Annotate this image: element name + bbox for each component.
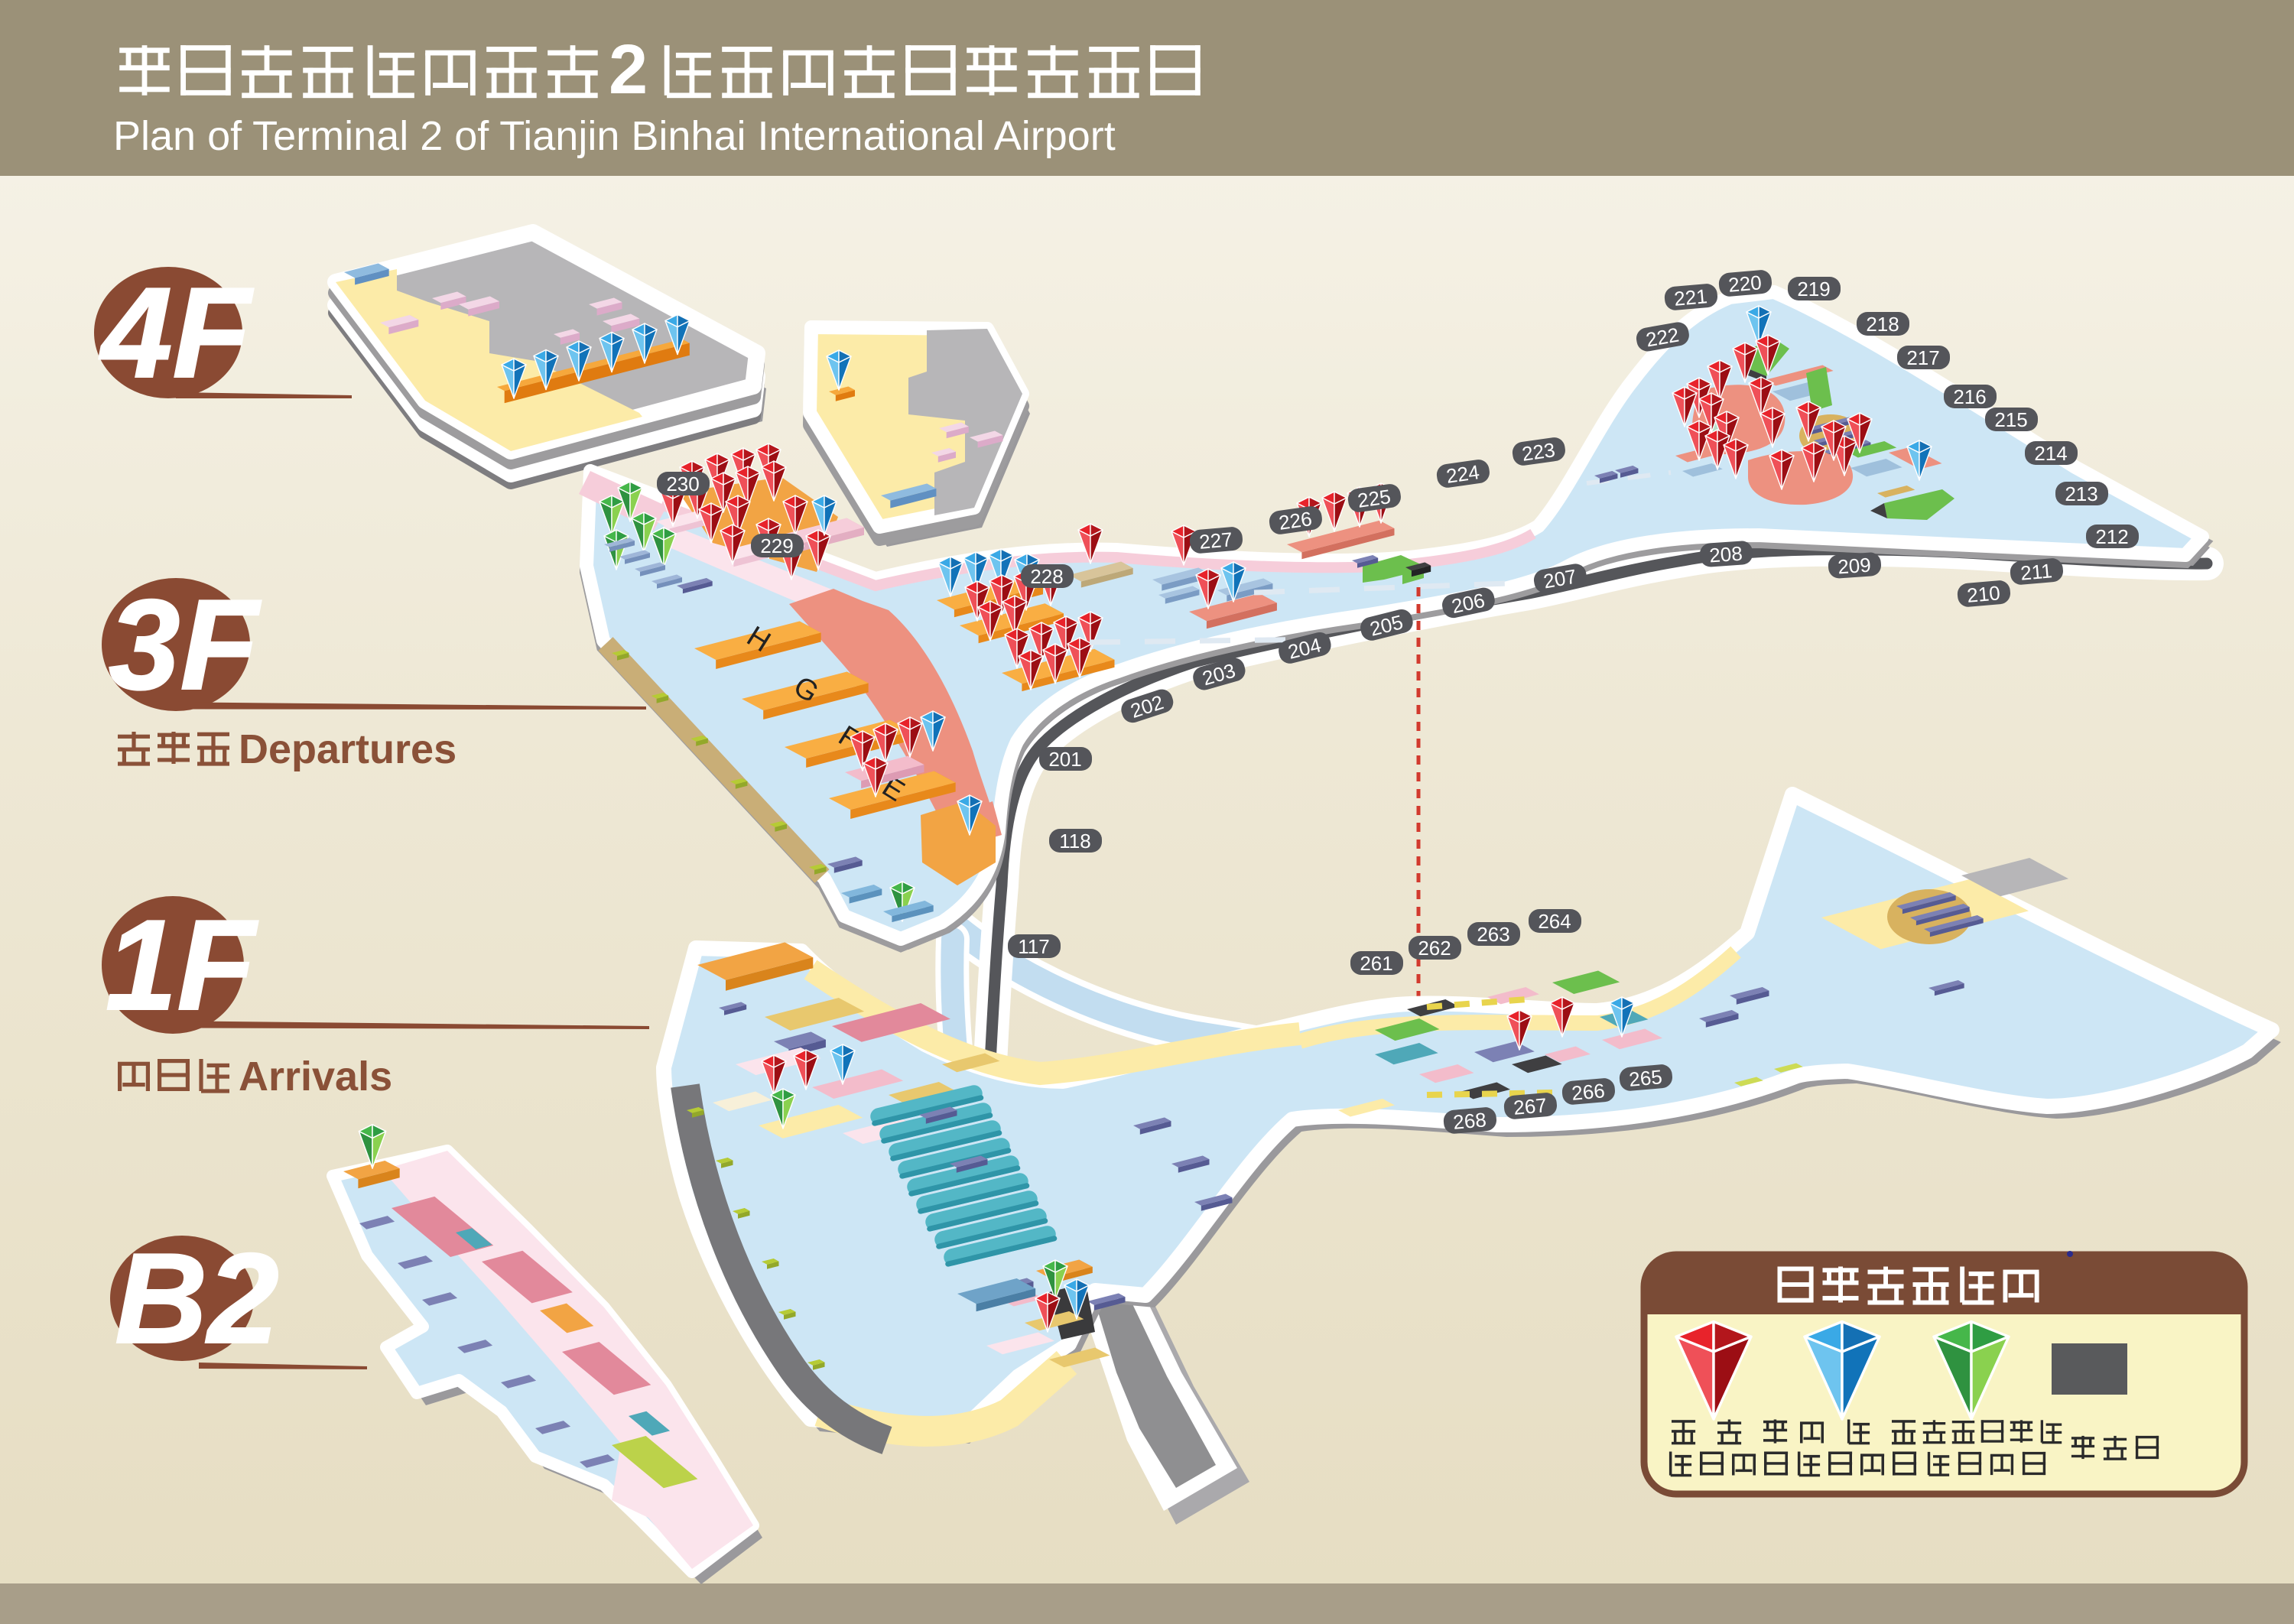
svg-text:208: 208 bbox=[1708, 542, 1743, 567]
svg-text:4F: 4F bbox=[99, 261, 254, 404]
svg-text:2: 2 bbox=[609, 31, 648, 109]
svg-text:228: 228 bbox=[1030, 565, 1063, 588]
svg-text:268: 268 bbox=[1452, 1108, 1487, 1134]
svg-text:267: 267 bbox=[1513, 1093, 1548, 1119]
svg-text:226: 226 bbox=[1277, 507, 1313, 534]
svg-text:230: 230 bbox=[666, 473, 699, 495]
svg-text:229: 229 bbox=[760, 534, 793, 557]
svg-text:212: 212 bbox=[2095, 525, 2128, 548]
svg-text:215: 215 bbox=[1994, 408, 2027, 431]
svg-text:209: 209 bbox=[1837, 554, 1871, 579]
svg-text:217: 217 bbox=[1906, 346, 1939, 369]
svg-text:210: 210 bbox=[1966, 581, 2001, 607]
svg-text:118: 118 bbox=[1059, 830, 1090, 853]
svg-text:117: 117 bbox=[1018, 935, 1049, 958]
svg-text:263: 263 bbox=[1477, 923, 1509, 946]
svg-text:Departures: Departures bbox=[239, 726, 457, 772]
svg-text:1F: 1F bbox=[106, 893, 258, 1037]
svg-text:B2: B2 bbox=[115, 1226, 279, 1370]
svg-text:227: 227 bbox=[1198, 528, 1233, 554]
svg-text:218: 218 bbox=[1866, 313, 1899, 336]
svg-text:261: 261 bbox=[1360, 952, 1392, 975]
svg-text:219: 219 bbox=[1797, 278, 1830, 300]
svg-text:201: 201 bbox=[1048, 748, 1081, 771]
svg-text:3F: 3F bbox=[109, 573, 262, 716]
svg-text:Arrivals: Arrivals bbox=[239, 1054, 392, 1099]
svg-text:214: 214 bbox=[2034, 442, 2067, 465]
svg-text:225: 225 bbox=[1356, 485, 1392, 512]
svg-text:220: 220 bbox=[1727, 271, 1763, 297]
svg-text:265: 265 bbox=[1628, 1065, 1663, 1091]
svg-text:216: 216 bbox=[1953, 385, 1986, 408]
svg-text:Plan of Terminal 2 of Tianjin: Plan of Terminal 2 of Tianjin Binhai Int… bbox=[113, 113, 1116, 159]
svg-text:211: 211 bbox=[2019, 559, 2053, 584]
svg-text:224: 224 bbox=[1444, 460, 1480, 488]
svg-text:213: 213 bbox=[2065, 482, 2097, 505]
svg-text:264: 264 bbox=[1538, 910, 1571, 933]
svg-text:262: 262 bbox=[1418, 937, 1451, 960]
svg-text:221: 221 bbox=[1673, 284, 1708, 310]
svg-text:223: 223 bbox=[1520, 438, 1556, 466]
svg-text:266: 266 bbox=[1571, 1079, 1606, 1105]
